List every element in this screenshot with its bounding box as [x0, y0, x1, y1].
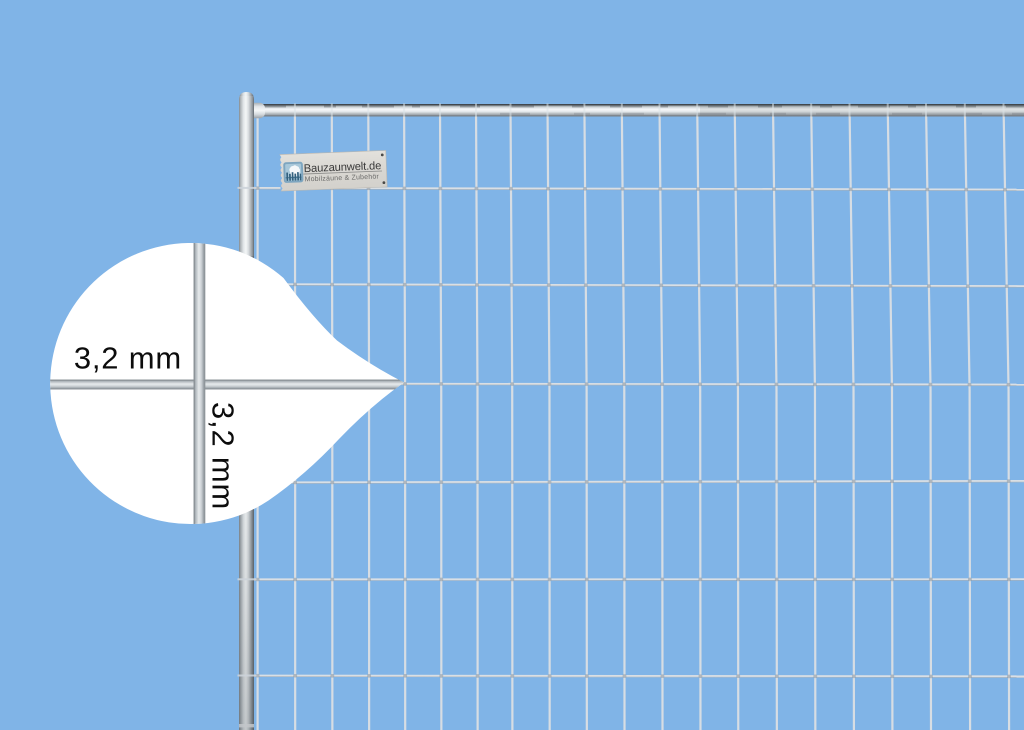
svg-text:3,2 mm: 3,2 mm: [206, 402, 241, 510]
svg-text:3,2 mm: 3,2 mm: [74, 341, 182, 376]
